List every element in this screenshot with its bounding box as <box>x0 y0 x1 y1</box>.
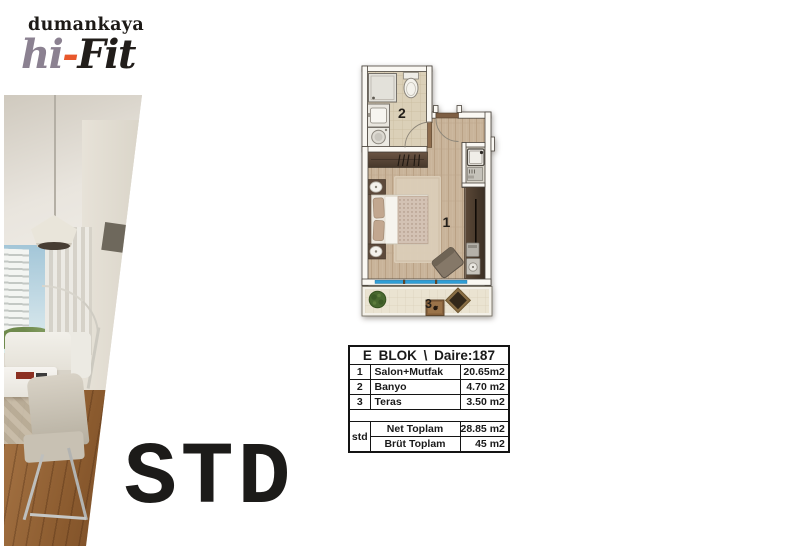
room-label-salon: 1 <box>443 214 451 230</box>
bed <box>367 195 429 245</box>
unit-type-label: STD <box>124 436 294 524</box>
bath-sink <box>368 104 390 127</box>
brut-total-value: 45 m2 <box>460 437 509 453</box>
cooktop <box>468 168 483 181</box>
area-table-header-row: E BLOK \ Daire:187 <box>349 346 509 365</box>
row-area: 4.70 m2 <box>460 380 509 395</box>
brut-total-label: Brüt Toplam <box>370 437 460 453</box>
kitchen-alcove <box>466 148 485 184</box>
area-table-title: E BLOK \ Daire:187 <box>349 346 509 365</box>
shower <box>369 74 397 103</box>
kitchen-counter <box>465 187 486 280</box>
photo-pendant-cord <box>54 95 56 217</box>
wardrobe <box>368 152 428 168</box>
photo-chair-seat <box>23 431 85 463</box>
photo-window-frame <box>101 222 149 256</box>
row-room: Salon+Mutfak <box>370 365 460 380</box>
net-total-label: Net Toplam <box>370 422 460 437</box>
row-number: 1 <box>349 365 370 380</box>
floor-plan: 1 2 3 <box>358 58 498 320</box>
nightstand-bottom <box>367 244 386 259</box>
room-label-banyo: 2 <box>398 105 406 121</box>
toilet <box>404 73 419 98</box>
terrace-plant <box>369 291 386 308</box>
spacer-row <box>349 410 509 422</box>
area-table: E BLOK \ Daire:187 1 Salon+Mutfak 20.65m… <box>348 345 510 453</box>
floor-plan-drawing: 1 2 3 <box>358 58 498 320</box>
room-label-teras: 3 <box>425 297 432 311</box>
brochure-page: dumankaya hi-Fit <box>0 0 800 546</box>
washing-machine <box>368 128 390 148</box>
nightstand-top <box>367 180 386 195</box>
row-area: 20.65m2 <box>460 365 509 380</box>
table-row: 3 Teras 3.50 m2 <box>349 395 509 410</box>
brand-product: hi-Fit <box>21 36 161 74</box>
summary-row-brut: Brüt Toplam 45 m2 <box>349 437 509 453</box>
net-total-value: 28.85 m2 <box>460 422 509 437</box>
summary-row-net: std Net Toplam 28.85 m2 <box>349 422 509 437</box>
row-room: Banyo <box>370 380 460 395</box>
photo-pendant-base <box>38 242 70 250</box>
summary-type: std <box>349 422 370 453</box>
brand-hi: hi <box>21 31 62 78</box>
row-area: 3.50 m2 <box>460 395 509 410</box>
brand-dash: - <box>62 31 77 78</box>
row-number: 3 <box>349 395 370 410</box>
row-number: 2 <box>349 380 370 395</box>
table-row: 1 Salon+Mutfak 20.65m2 <box>349 365 509 380</box>
brand-logo: dumankaya hi-Fit <box>21 15 161 74</box>
row-room: Teras <box>370 395 460 410</box>
brand-fit: Fit <box>77 31 135 78</box>
table-row: 2 Banyo 4.70 m2 <box>349 380 509 395</box>
terrace-window <box>375 280 467 284</box>
